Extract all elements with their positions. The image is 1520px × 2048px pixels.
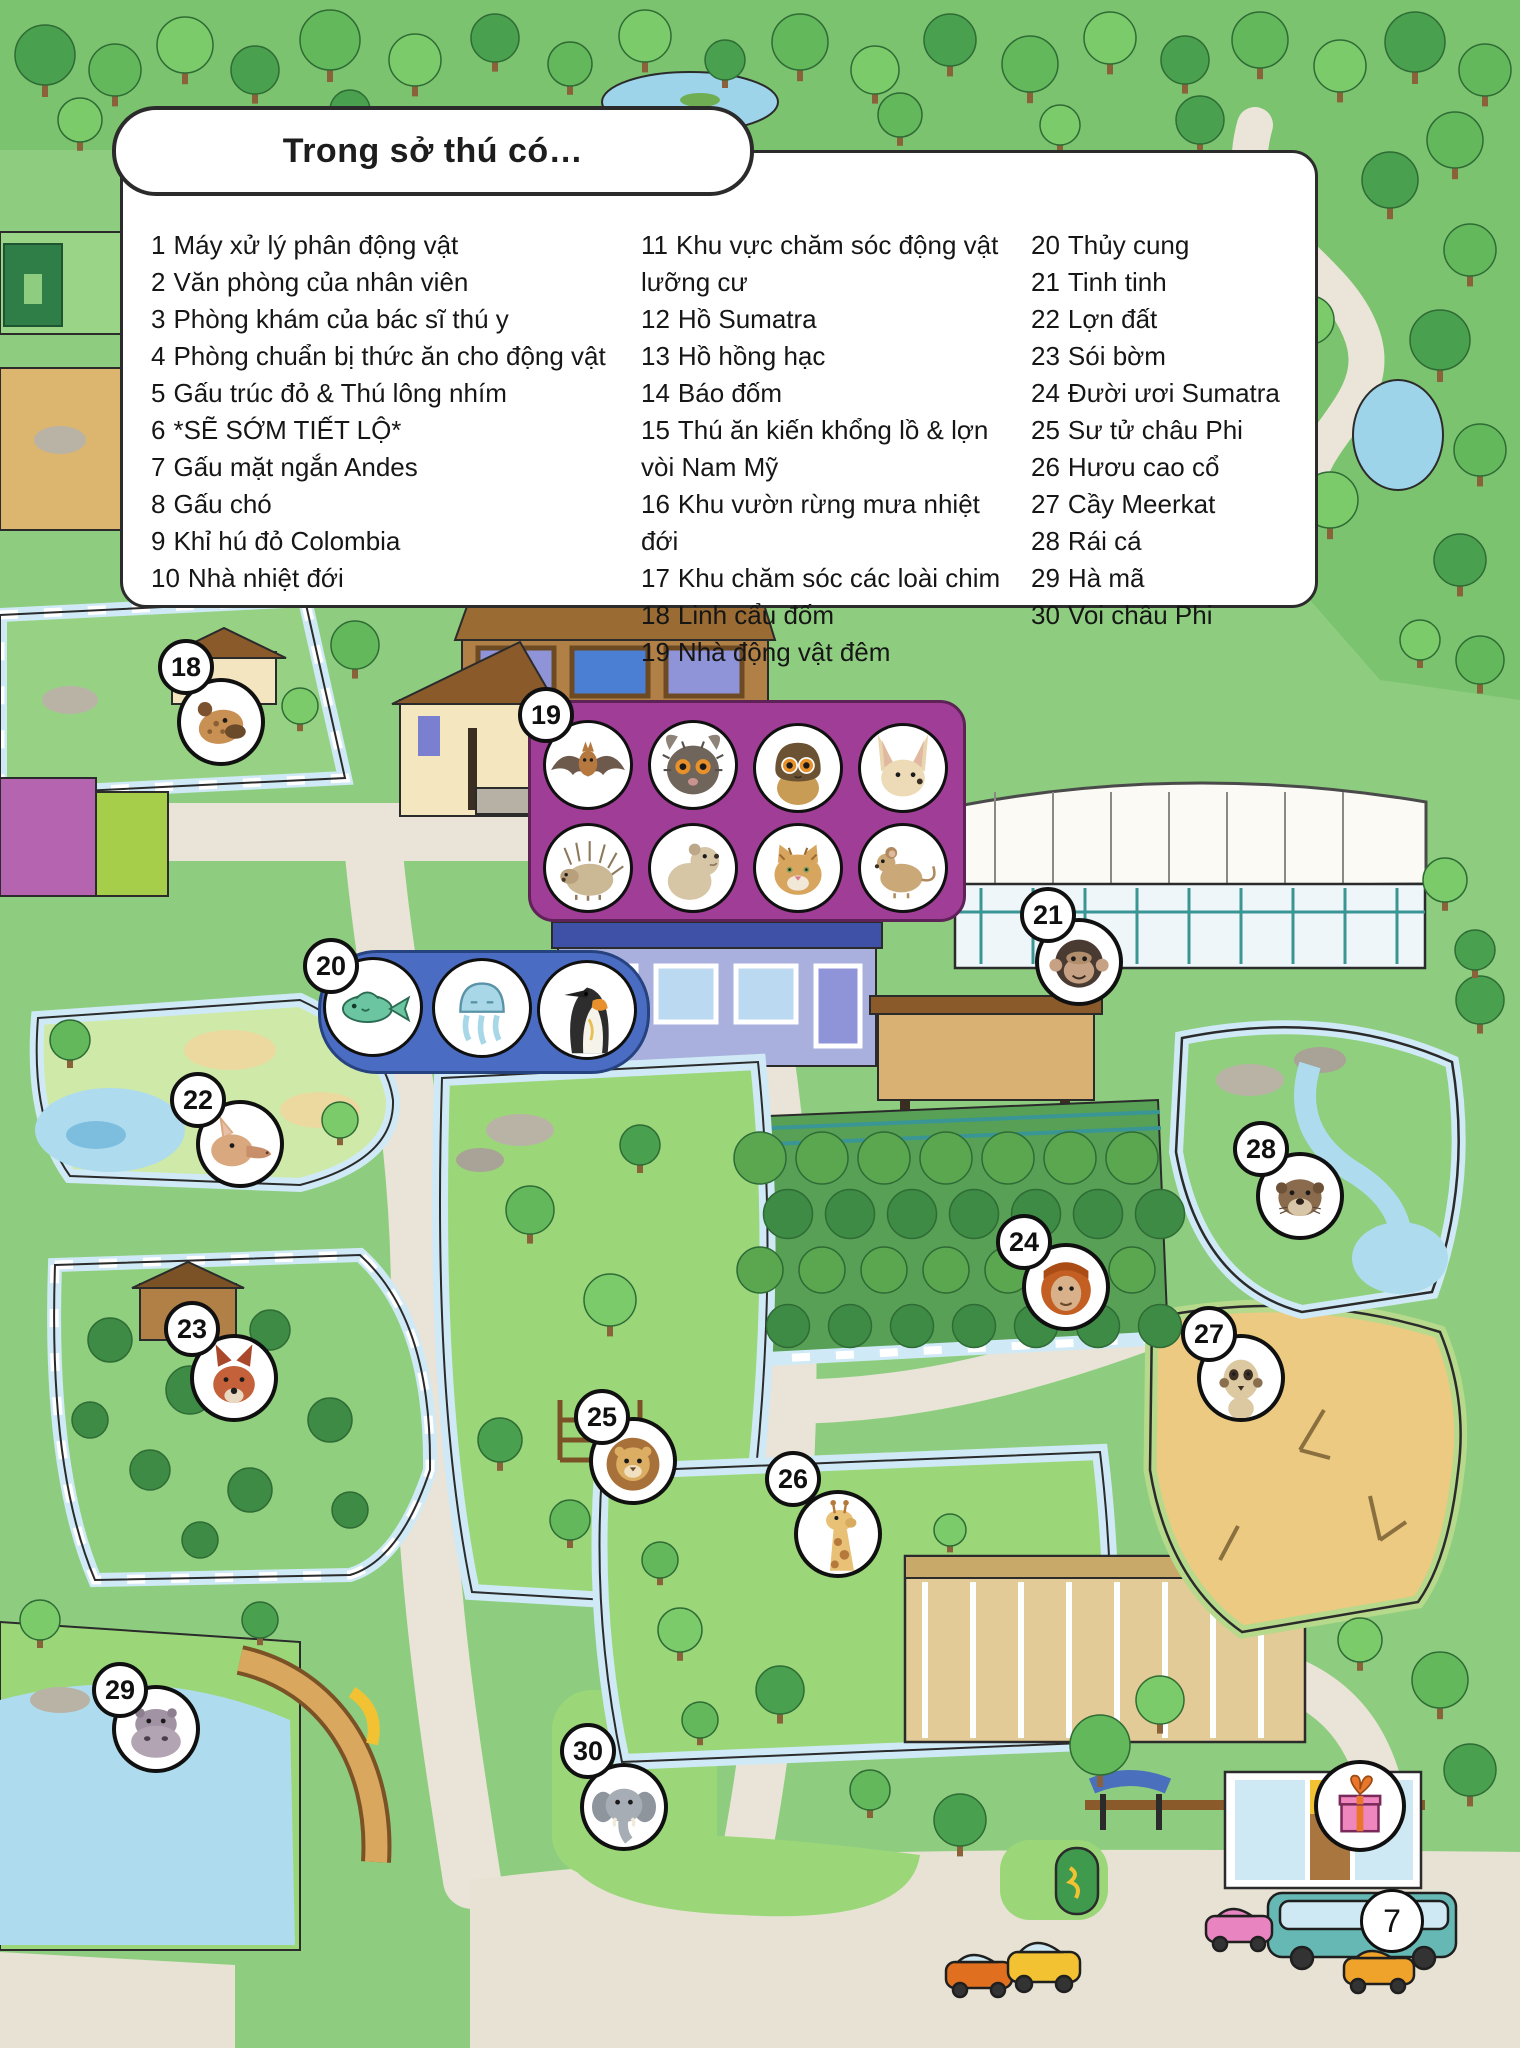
legend-item: 15Thú ăn kiến khổng lồ & lợn vòi Nam Mỹ	[641, 412, 1013, 486]
zoo-map-page: 1Máy xử lý phân động vật 2Văn phòng của …	[0, 0, 1520, 2048]
wild-cat-icon	[753, 823, 843, 913]
map-marker-24: 24	[996, 1214, 1052, 1270]
legend-item: 22Lợn đất	[1031, 301, 1313, 338]
legend-item: 26Hươu cao cổ	[1031, 449, 1313, 486]
legend-item: 6*SẼ SỚM TIẾT LỘ*	[151, 412, 643, 449]
map-marker-27: 27	[1181, 1306, 1237, 1362]
night-monkey-icon	[753, 723, 843, 813]
legend-item: 16Khu vườn rừng mưa nhiệt đới	[641, 486, 1013, 560]
legend-item: 20Thủy cung	[1031, 227, 1313, 264]
pink-building	[0, 778, 96, 896]
kinkajou-icon	[648, 823, 738, 913]
legend-item: 21Tinh tinh	[1031, 264, 1313, 301]
legend-item: 24Đười ươi Sumatra	[1031, 375, 1313, 412]
event-tent	[958, 783, 1426, 888]
legend-item: 10Nhà nhiệt đới	[151, 560, 643, 597]
legend-item: 4Phòng chuẩn bị thức ăn cho động vật	[151, 338, 643, 375]
map-marker-30: 30	[560, 1723, 616, 1779]
legend-item: 19Nhà động vật đêm	[641, 634, 1013, 671]
legend-item: 18Linh cẩu đốm	[641, 597, 1013, 634]
mouse-icon	[858, 823, 948, 913]
gift-badge	[1314, 1760, 1406, 1852]
map-marker-28: 28	[1233, 1121, 1289, 1177]
map-marker-19: 19	[518, 687, 574, 743]
map-marker-26: 26	[765, 1451, 821, 1507]
giraffe-marker-icon	[794, 1490, 882, 1578]
legend-item: 30Voi châu Phi	[1031, 597, 1313, 634]
map-marker-22: 22	[170, 1072, 226, 1128]
legend-item: 9Khỉ hú đỏ Colombia	[151, 523, 643, 560]
legend-column-3: 20Thủy cung 21Tinh tinh 22Lợn đất 23Sói …	[1031, 227, 1313, 634]
legend-item: 27Cầy Meerkat	[1031, 486, 1313, 523]
map-marker-29: 29	[92, 1662, 148, 1718]
legend-item: 14Báo đốm	[641, 375, 1013, 412]
jellyfish-icon	[432, 958, 532, 1058]
legend-item: 8Gấu chó	[151, 486, 643, 523]
legend-item: 23Sói bờm	[1031, 338, 1313, 375]
legend-title-bubble: Trong sở thú có…	[112, 106, 754, 196]
zoo-sign	[1056, 1848, 1098, 1914]
lime-building	[96, 792, 168, 896]
map-marker-25: 25	[574, 1389, 630, 1445]
legend-item: 29Hà mã	[1031, 560, 1313, 597]
porcupine-icon	[543, 823, 633, 913]
fennec-fox-icon	[858, 723, 948, 813]
map-marker-23: 23	[164, 1301, 220, 1357]
legend-item: 11Khu vực chăm sóc động vật lưỡng cư	[641, 227, 1013, 301]
map-marker-20: 20	[303, 938, 359, 994]
gift-icon	[1318, 1764, 1402, 1848]
king-penguin-icon	[537, 960, 637, 1060]
aye-aye-icon	[648, 720, 738, 810]
legend-item: 17Khu chăm sóc các loài chim	[641, 560, 1013, 597]
legend-item: 13Hồ hồng hạc	[641, 338, 1013, 375]
map-marker-18: 18	[158, 639, 214, 695]
legend-item: 25Sư tử châu Phi	[1031, 412, 1313, 449]
legend-item: 3Phòng khám của bác sĩ thú y	[151, 301, 643, 338]
map-marker-21: 21	[1020, 887, 1076, 943]
page-number-badge: 7	[1360, 1889, 1424, 1953]
legend-item: 2Văn phòng của nhân viên	[151, 264, 643, 301]
page-title: Trong sở thú có…	[283, 132, 583, 171]
legend-item: 1Máy xử lý phân động vật	[151, 227, 643, 264]
legend-item: 28Rái cá	[1031, 523, 1313, 560]
legend-item: 7Gấu mặt ngắn Andes	[151, 449, 643, 486]
legend-panel: 1Máy xử lý phân động vật 2Văn phòng của …	[120, 150, 1318, 608]
legend-column-1: 1Máy xử lý phân động vật 2Văn phòng của …	[151, 227, 643, 597]
legend-item: 5Gấu trúc đỏ & Thú lông nhím	[151, 375, 643, 412]
bench-canopy	[1092, 1778, 1168, 1786]
legend-item: 12Hồ Sumatra	[641, 301, 1013, 338]
legend-column-2: 11Khu vực chăm sóc động vật lưỡng cư 12H…	[641, 227, 1013, 671]
